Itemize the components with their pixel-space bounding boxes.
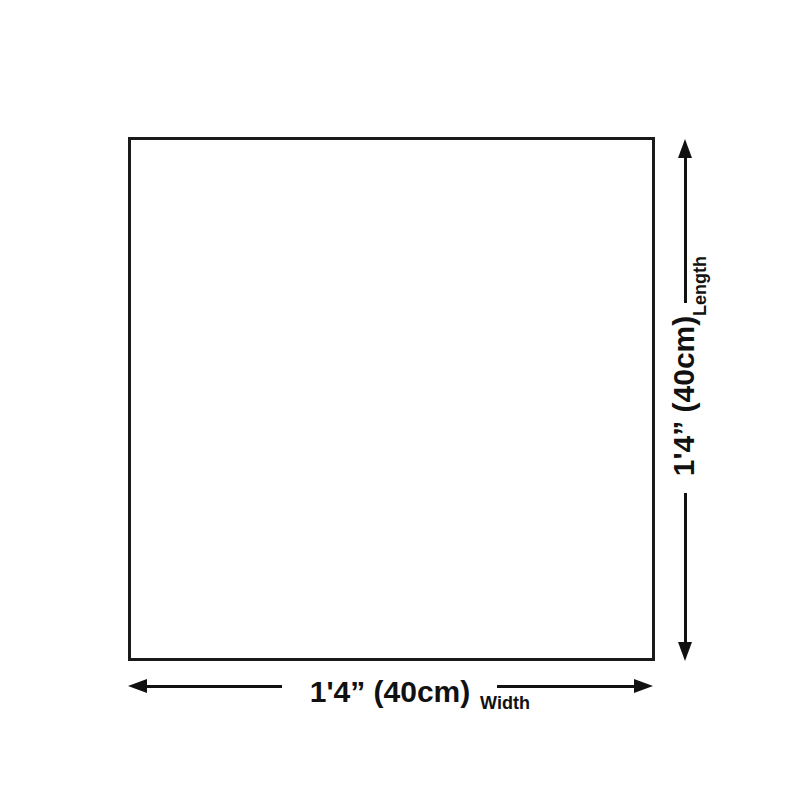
width-arrow-left-head bbox=[128, 679, 147, 693]
width-arrow-right-head bbox=[634, 679, 653, 693]
length-dimension-label: 1'4” (40cm) bbox=[669, 316, 699, 477]
length-axis-label: Length bbox=[691, 256, 709, 316]
product-outline-square bbox=[128, 137, 655, 661]
length-arrow-down-head bbox=[678, 642, 692, 661]
width-arrow-left-line bbox=[146, 685, 282, 688]
length-arrow-top-line bbox=[684, 156, 687, 303]
length-arrow-bottom-line bbox=[684, 493, 687, 643]
width-arrow-right-line bbox=[497, 685, 634, 688]
width-dimension-label: 1'4” (40cm) bbox=[310, 677, 471, 707]
width-axis-label: Width bbox=[480, 694, 530, 712]
